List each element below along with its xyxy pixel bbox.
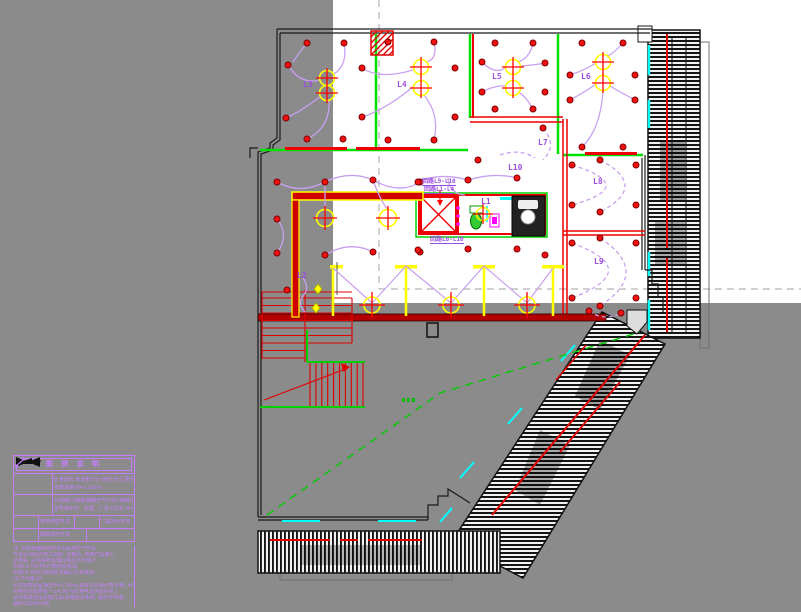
column-stub [427, 323, 438, 337]
room-label-l5: L5 [492, 72, 502, 81]
room-label-l8: L8 [593, 177, 603, 186]
room-label-l6: L6 [581, 72, 591, 81]
room-label-l2: L2 [297, 271, 307, 280]
legend-text: 型号由甲方、监理、广告公司定 H=1.40m [54, 505, 133, 513]
legend-row: 单极墙壁开关 二联防水开关 [14, 515, 134, 528]
room-label-l1: L1 [481, 197, 491, 206]
legend-notes: 注. 所有电器照明开关均采用空气开关. 开关必须经过电工验收. 合格后, 启用灯… [13, 546, 135, 607]
legend-text: B 金卤灯 轨道射灯(小射灯)为汇报厅照明 [54, 476, 133, 484]
legend-text: 四联单控开关 [39, 529, 87, 541]
switch-symbol [75, 516, 100, 528]
legend-row: B 金卤灯 轨道射灯(小射灯)为汇报厅照明 安装高度(H=1.50m) [14, 473, 134, 494]
legend-text: 分线箱(内装断路器空气开关)(暗装)距地1.4m [54, 497, 133, 505]
room-label-l10: L10 [508, 163, 522, 172]
note-line: 最终以现场为准) [13, 601, 134, 607]
track-lamp-symbol [14, 474, 53, 494]
roof-band-bottom [258, 531, 500, 573]
green-tiny-marks [402, 398, 415, 402]
roof-band-right [638, 26, 700, 338]
note-line: 吊顶标高预留净空H=1.50m(具体以现场计算为准, 吊顶 [13, 583, 134, 589]
room-label-l9: L9 [594, 257, 604, 266]
legend-row: 分线箱(内装断路器空气开关)(暗装)距地1.4m 型号由甲方、监理、广告公司定 … [14, 494, 134, 515]
switch-symbol [14, 516, 39, 528]
room-label-l4: L4 [397, 80, 407, 89]
switch-symbol [14, 529, 39, 541]
viewport-guides [379, 0, 801, 289]
staircase [260, 287, 365, 407]
legend-text: 单极墙壁开关 [39, 516, 75, 528]
wiring-purple [277, 42, 635, 317]
circuit-label-3: 回路L8-L10 [430, 234, 464, 244]
room-label-l7: L7 [538, 138, 548, 147]
cad-canvas[interactable]: L3 L4 L5 L6 L7 L10 L8 L9 L1 L2 回路L9-L10 … [0, 0, 801, 612]
circuit-label-2: 回路L1-L4 [424, 184, 454, 194]
legend-table: 图 例 说 明 B 金卤灯 轨道射灯(小射灯)为汇报厅照明 安装高度(H=1.5… [13, 455, 135, 542]
note-line: 内电线均需穿管一±4.8V为标准电源供给补给.) [13, 589, 134, 595]
legend-text: 二联防水开关 [100, 516, 135, 528]
room-label-l3: L3 [303, 80, 313, 89]
legend-row: 四联单控开关 [14, 528, 134, 541]
junction-box-symbol [14, 495, 53, 515]
note-line: 吊顶标高预留多套灯具(多路空调系统, 展示灯环境, [13, 595, 134, 601]
crosshair-fixtures [313, 52, 614, 318]
legend-text: 安装高度(H=1.50m) [54, 484, 133, 492]
